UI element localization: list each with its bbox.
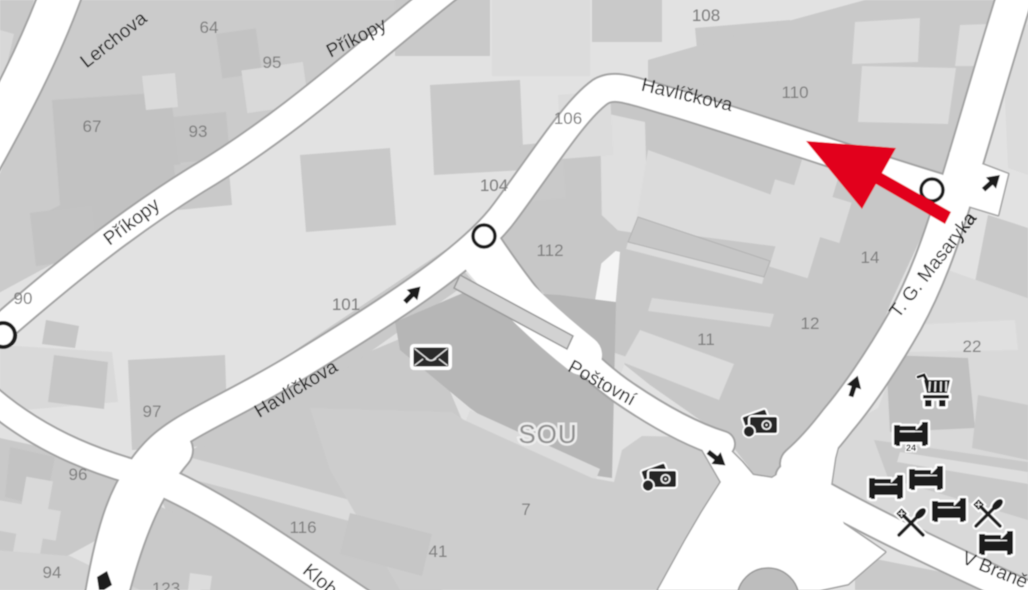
svg-text:22: 22	[963, 337, 982, 356]
svg-text:93: 93	[189, 122, 208, 141]
svg-text:95: 95	[263, 53, 282, 72]
svg-text:96: 96	[69, 465, 88, 484]
svg-text:7: 7	[521, 500, 530, 519]
svg-text:123: 123	[152, 579, 180, 590]
svg-text:110: 110	[781, 83, 808, 102]
svg-text:14: 14	[861, 248, 880, 267]
svg-text:108: 108	[692, 6, 720, 25]
svg-text:94: 94	[43, 563, 62, 582]
svg-text:104: 104	[480, 176, 508, 195]
svg-text:106: 106	[554, 109, 582, 128]
svg-text:97: 97	[143, 402, 162, 421]
svg-text:24: 24	[906, 443, 916, 453]
svg-text:11: 11	[697, 330, 715, 349]
svg-text:101: 101	[332, 295, 360, 314]
svg-text:SOU: SOU	[518, 419, 577, 449]
svg-text:12: 12	[801, 314, 820, 333]
svg-text:90: 90	[14, 289, 33, 308]
svg-text:64: 64	[200, 18, 219, 37]
svg-text:116: 116	[289, 518, 316, 537]
svg-text:67: 67	[83, 117, 102, 136]
svg-text:112: 112	[536, 241, 563, 260]
svg-text:41: 41	[429, 542, 448, 561]
